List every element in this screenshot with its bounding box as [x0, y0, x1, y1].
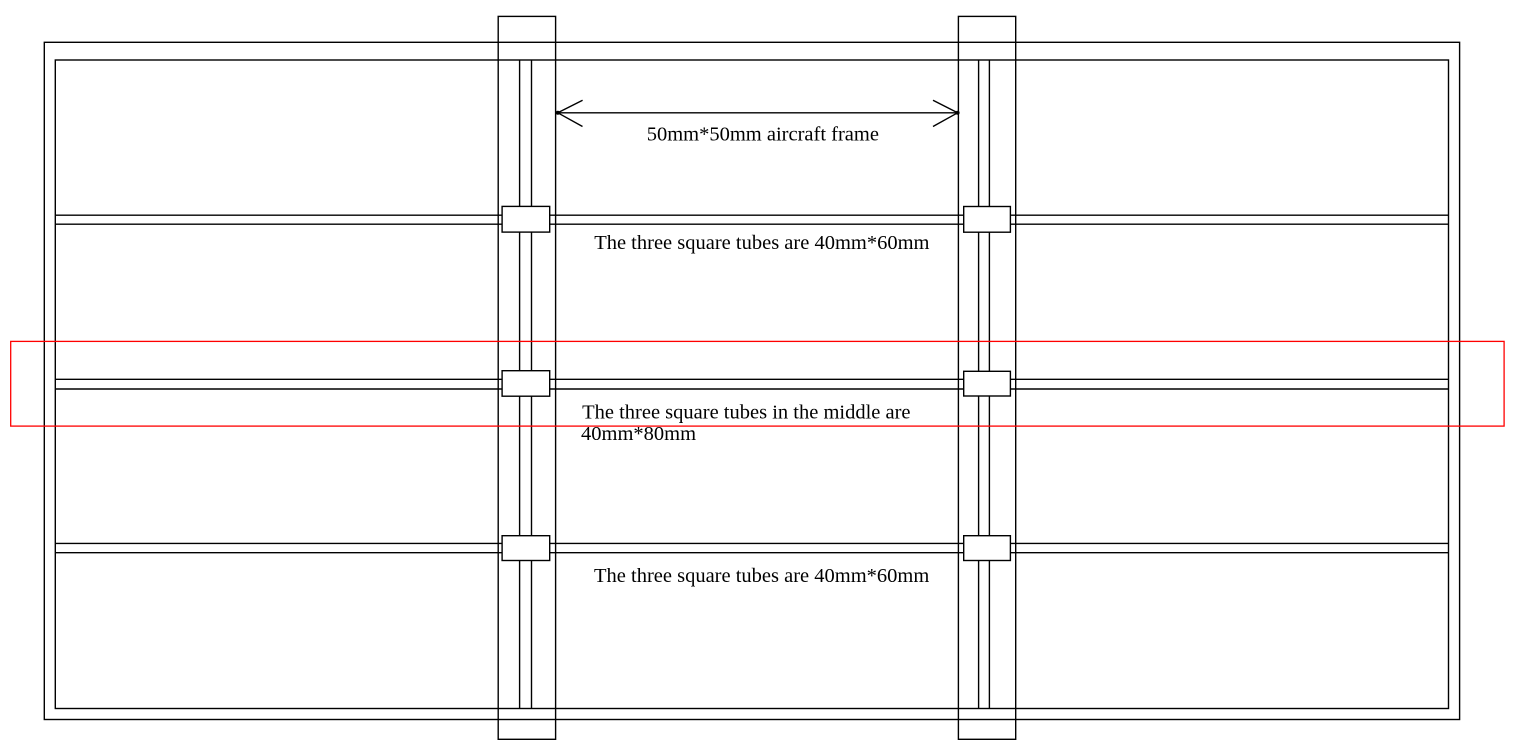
svg-text:The three square tubes are 40m: The three square tubes are 40mm*60mm [594, 232, 929, 254]
svg-text:The three square tubes are 40m: The three square tubes are 40mm*60mm [594, 565, 929, 587]
svg-text:40mm*80mm: 40mm*80mm [581, 423, 696, 445]
svg-text:50mm*50mm aircraft frame: 50mm*50mm aircraft frame [647, 123, 879, 145]
svg-text:The three square tubes in the: The three square tubes in the middle are [582, 401, 910, 423]
